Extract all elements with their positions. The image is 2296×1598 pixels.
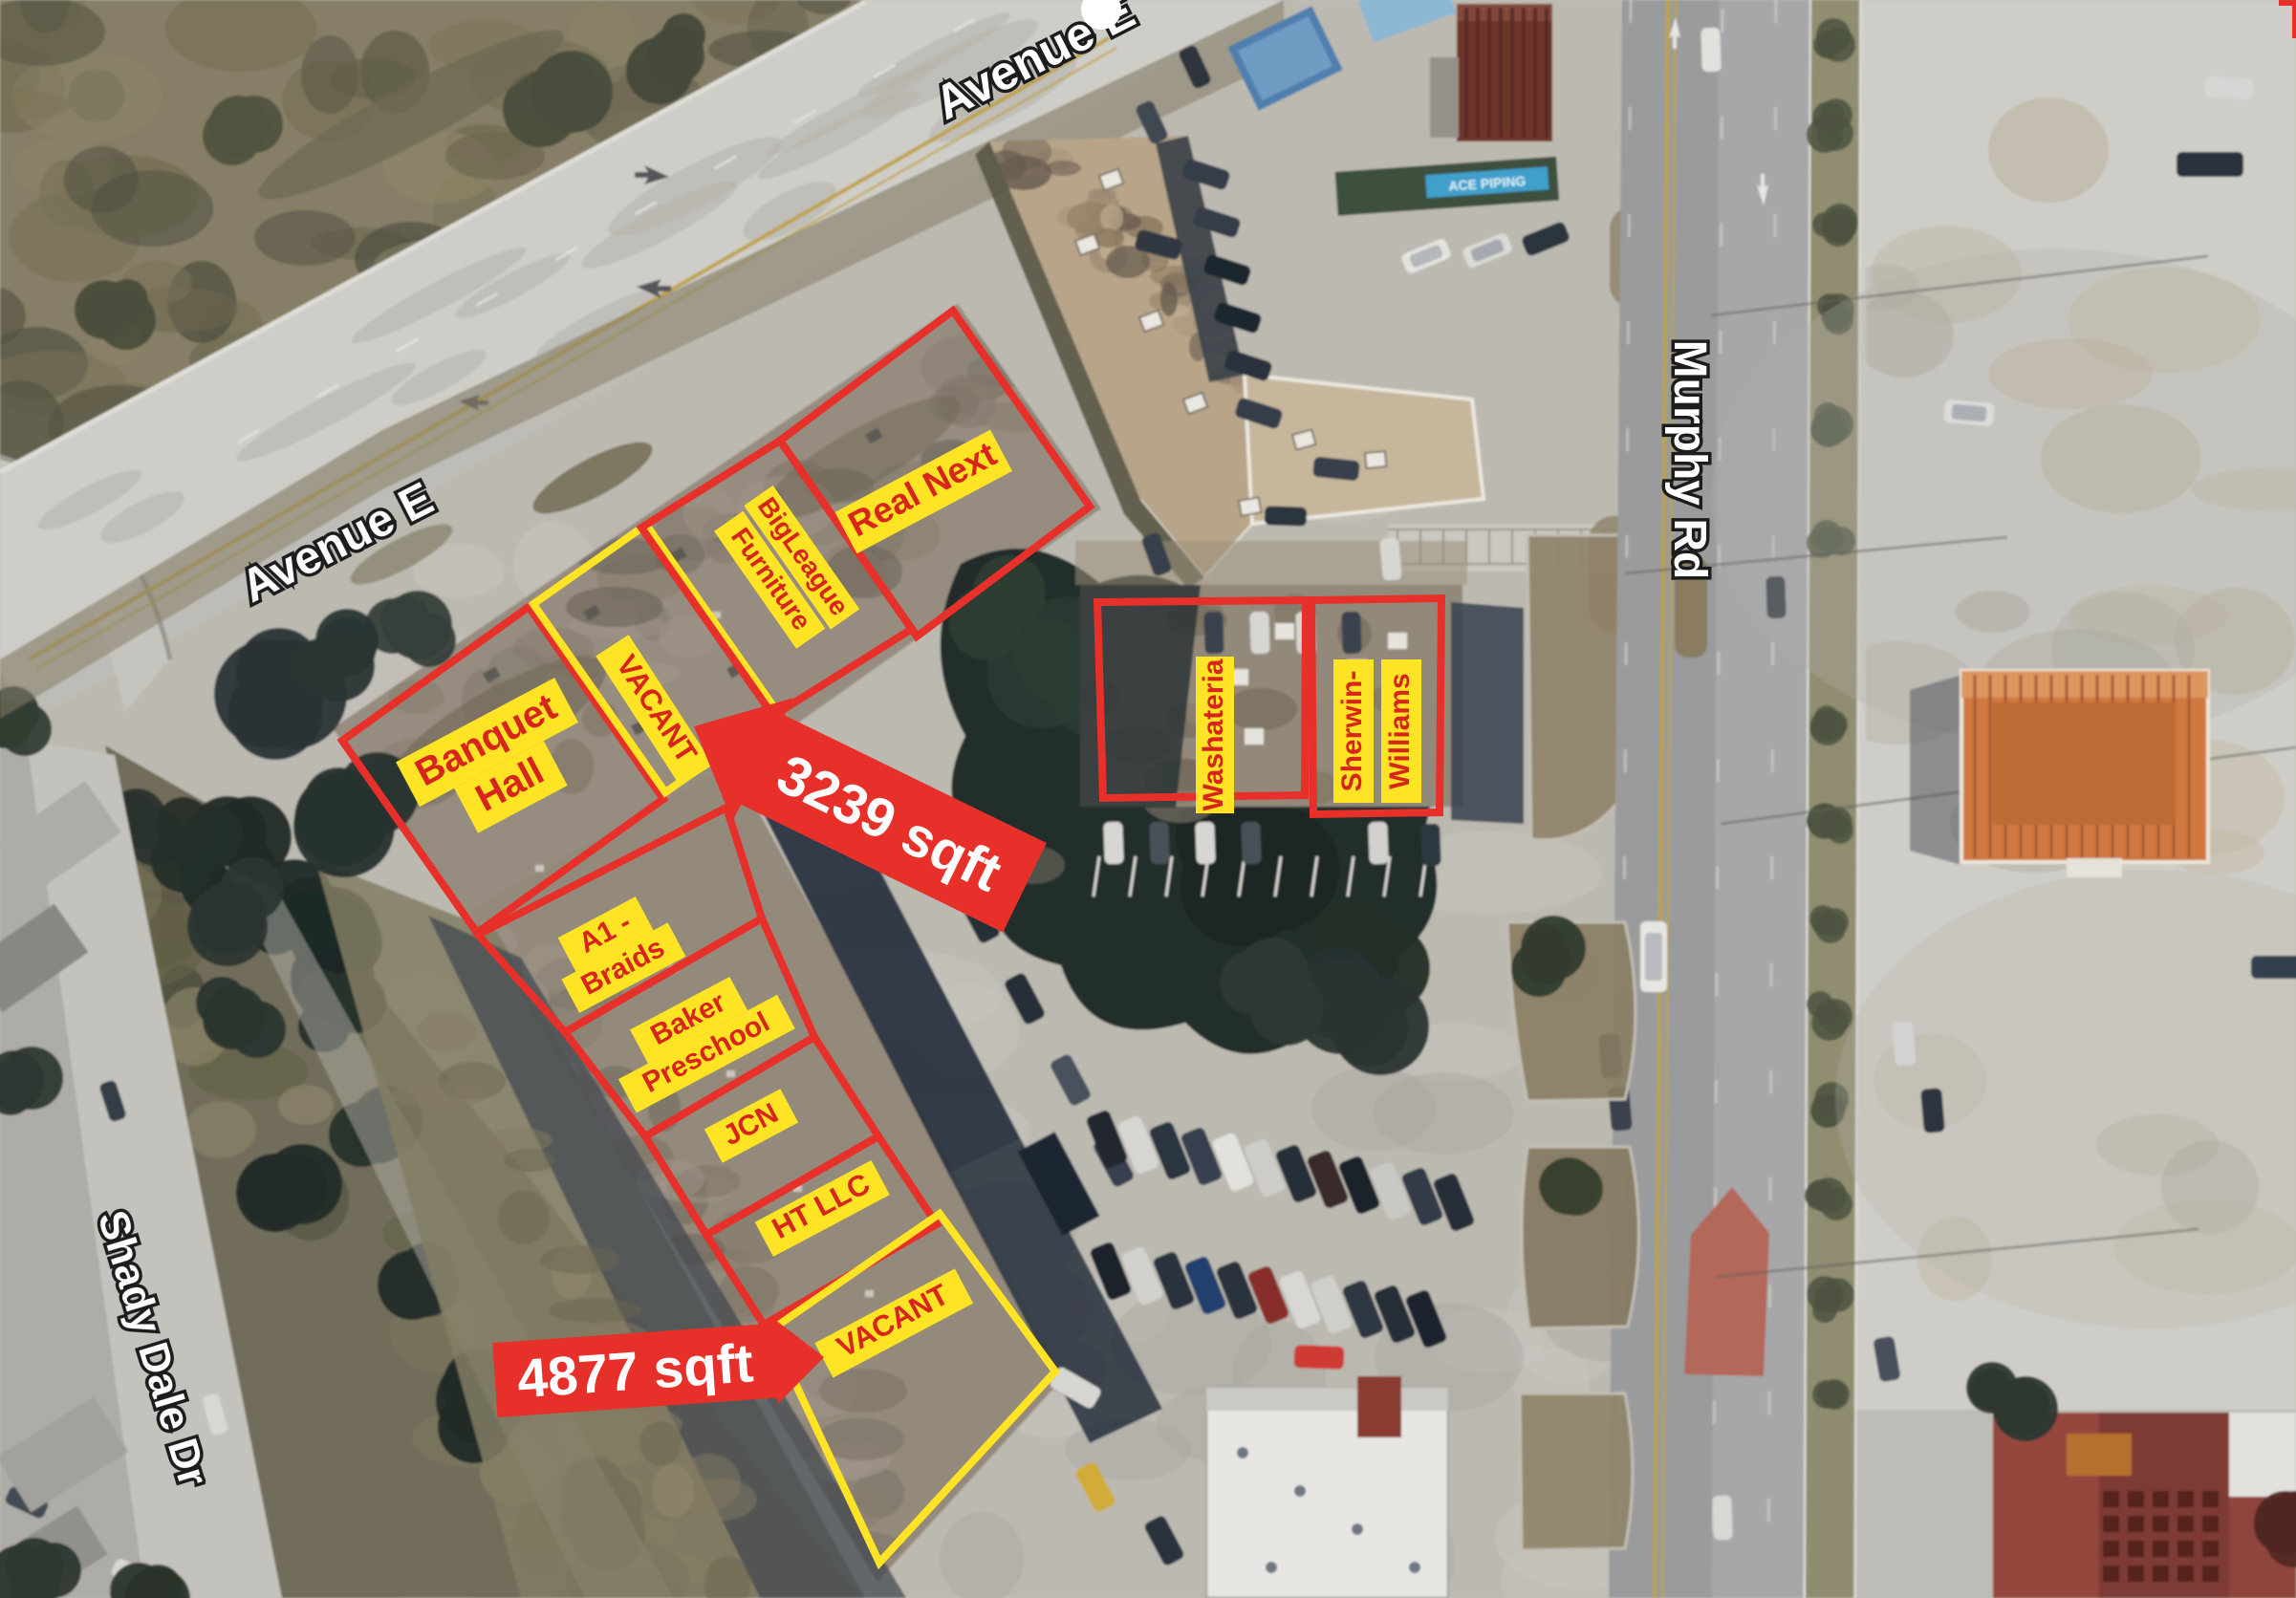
svg-text:Murphy Rd: Murphy Rd: [1664, 340, 1715, 580]
svg-text:Washateria: Washateria: [1198, 659, 1229, 810]
svg-text:Sherwin-: Sherwin-: [1336, 671, 1368, 792]
svg-text:Williams: Williams: [1384, 673, 1416, 788]
